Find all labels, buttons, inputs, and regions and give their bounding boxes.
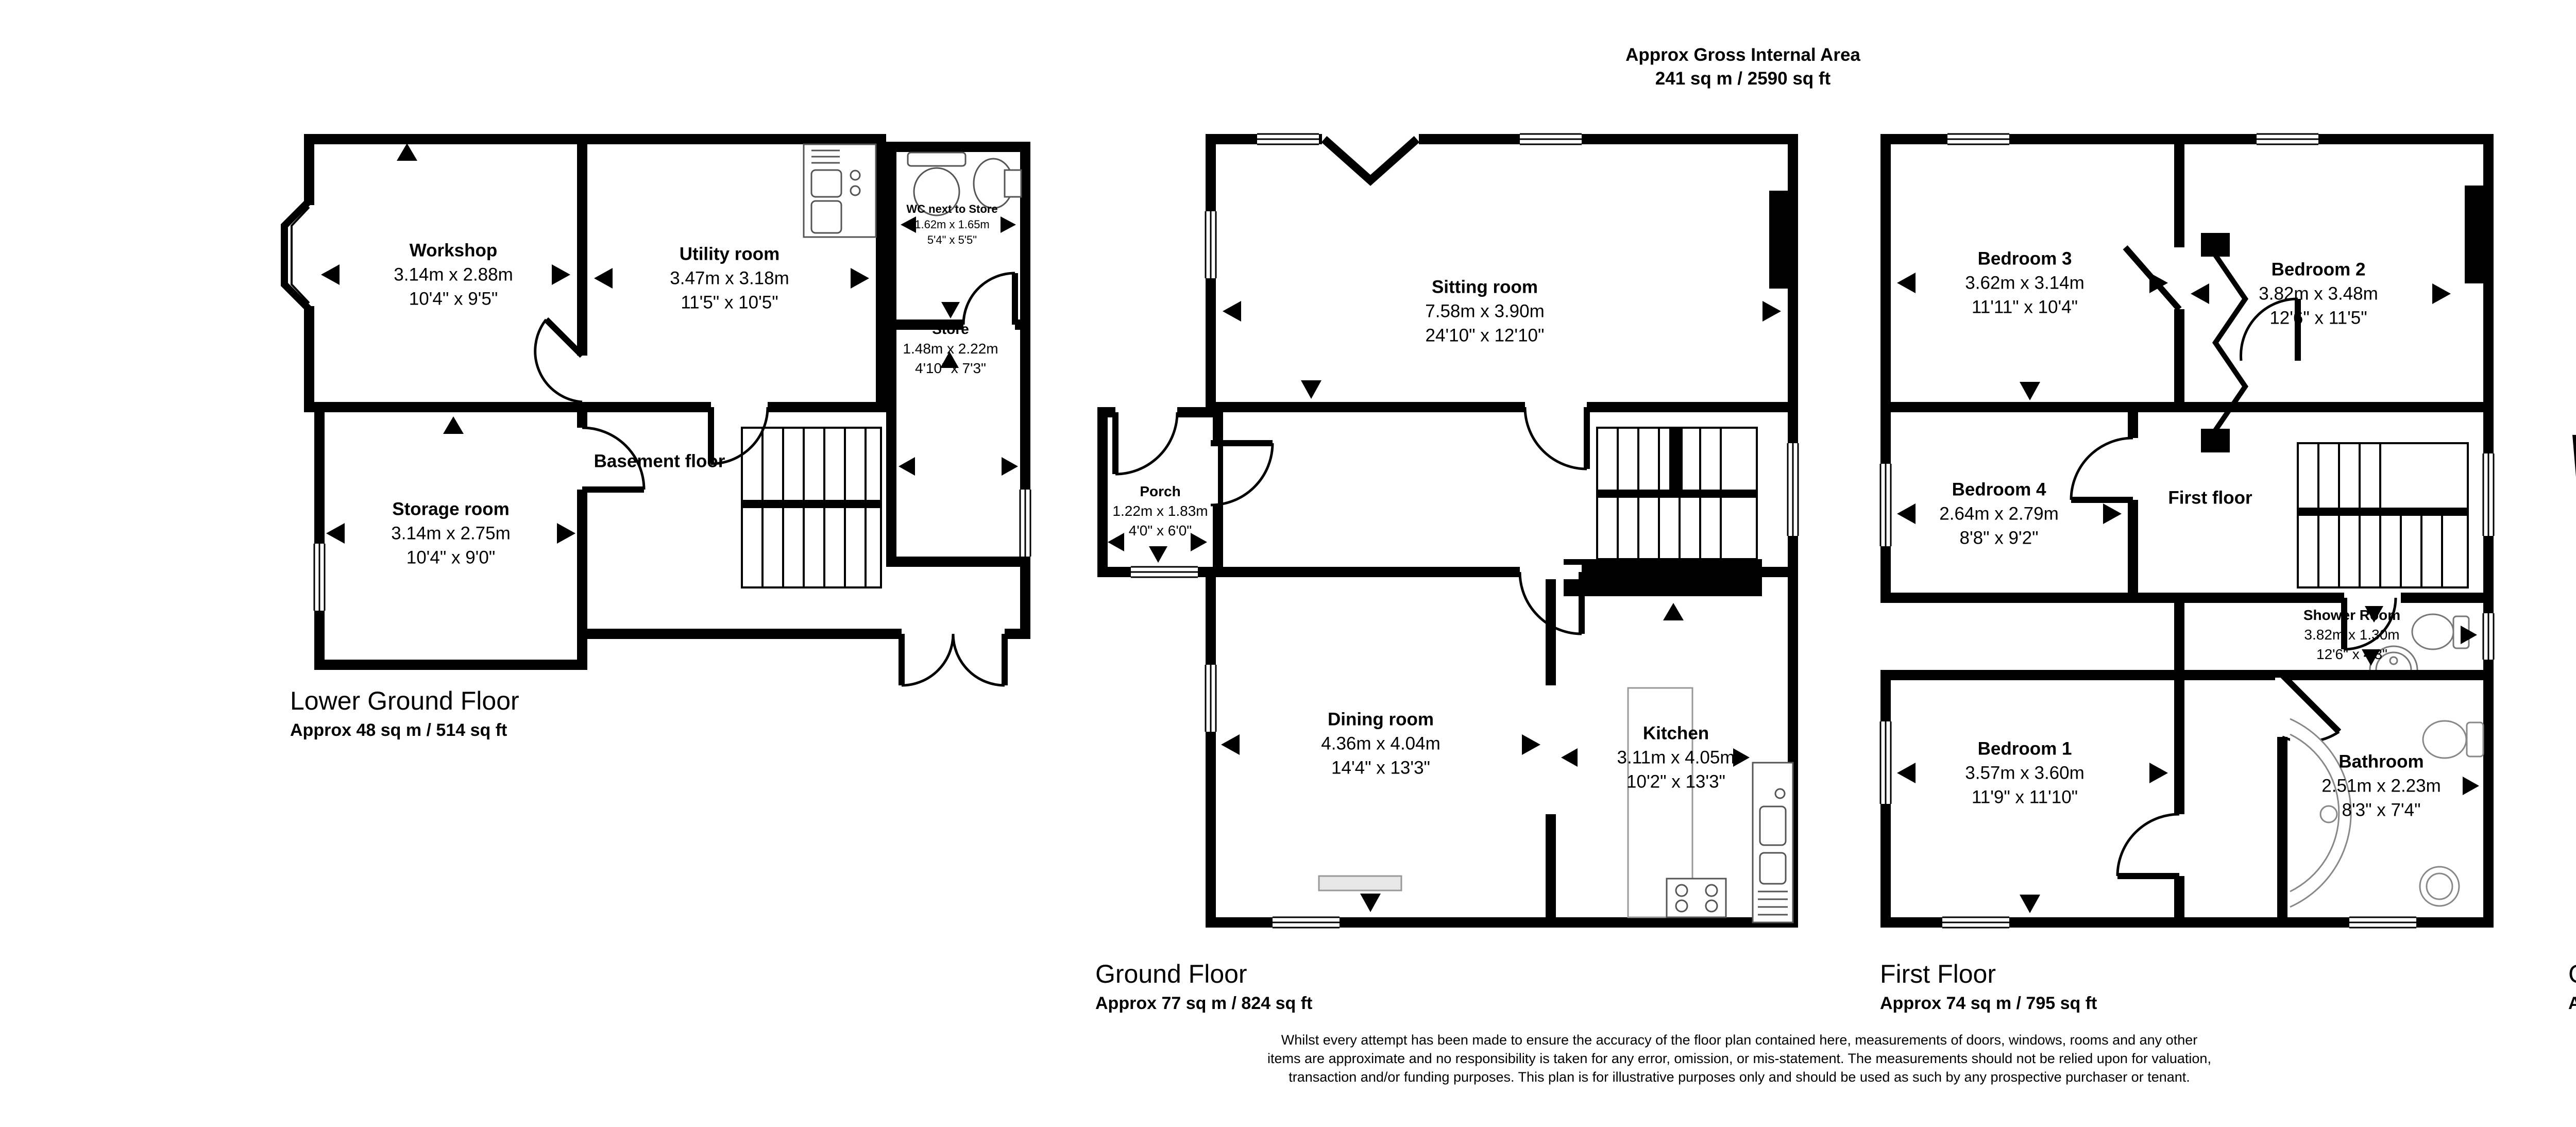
- room-label-sitting: Sitting room 7.58m x 3.90m 24'10" x 12'1…: [1425, 275, 1545, 348]
- room-label-kitchen: Kitchen 3.11m x 4.05m 10'2" x 13'3": [1617, 721, 1735, 794]
- bedroom2-chimney: [2465, 186, 2488, 283]
- room-sitting-walls: [1211, 139, 1793, 407]
- room-label-bedroom1: Bedroom 1 3.57m x 3.60m 11'9" x 11'10": [1965, 737, 2084, 810]
- utility-sink: [804, 144, 876, 237]
- gross-internal-area-header: Approx Gross Internal Area 241 sq m / 25…: [1625, 43, 1860, 91]
- room-label-bathroom: Bathroom 2.51m x 2.23m 8'3" x 7'4": [2321, 750, 2441, 822]
- storage-window: [312, 544, 327, 611]
- floor-title-ground: Ground Floor Approx 77 sq m / 824 sq ft: [1095, 960, 1312, 1014]
- room-label-store: Store 1.48m x 2.22m 4'10" x 7'3": [903, 319, 998, 378]
- header-area-value: 241 sq m / 2590 sq ft: [1625, 67, 1860, 91]
- header-title: Approx Gross Internal Area: [1625, 43, 1860, 67]
- room-label-bedroom4: Bedroom 4 2.64m x 2.79m 8'8" x 9'2": [1939, 478, 2059, 550]
- workshop-bay-window: [284, 201, 316, 309]
- kitchen-stove: [1667, 879, 1726, 917]
- room-label-utility: Utility room 3.47m x 3.18m 11'5" x 10'5": [670, 242, 789, 315]
- room-label-shower-room: Shower Room 3.82m x 1.30m 12'6" x 4'3": [2303, 605, 2400, 664]
- floor-title-lower-ground: Lower Ground Floor Approx 48 sq m / 514 …: [290, 686, 519, 741]
- room-label-bedroom2: Bedroom 2 3.82m x 3.48m 12'6" x 11'5": [2259, 258, 2378, 330]
- sitting-chimney: [1769, 191, 1793, 289]
- floorplan-drawing: N E S W: [0, 0, 2576, 1127]
- room-label-basement-floor: Basement floor: [594, 449, 725, 474]
- disclaimer-text: Whilst every attempt has been made to en…: [1266, 1031, 2212, 1086]
- room-label-workshop: Workshop 3.14m x 2.88m 10'4" x 9'5": [394, 239, 513, 311]
- store-window: [1018, 490, 1032, 557]
- room-label-bedroom3: Bedroom 3 3.62m x 3.14m 11'11" x 10'4": [1965, 247, 2084, 319]
- ff-inner-hall-walls: [2179, 675, 2282, 922]
- floorplan-page: N E S W Approx Gross Internal Area 241 s…: [0, 0, 2576, 1127]
- room-label-first-floor-landing: First floor: [2168, 486, 2252, 510]
- ff-stairs: [2298, 443, 2468, 587]
- room-label-porch: Porch 1.22m x 1.83m 4'0" x 6'0": [1112, 482, 1208, 541]
- room-label-storage: Storage room 3.14m x 2.75m 10'4" x 9'0": [391, 497, 511, 570]
- floor-title-garage: Garage Approx 42 sq m / 457 sq ft: [2568, 960, 2576, 1014]
- floor-title-first: First Floor Approx 74 sq m / 795 sq ft: [1880, 960, 2097, 1014]
- kitchen-opening: [1544, 685, 1558, 814]
- room-label-wc: WC next to Store 1.62m x 1.65m 5'4" x 5'…: [906, 201, 997, 248]
- basement-stairs: [742, 428, 881, 587]
- room-label-dining: Dining room 4.36m x 4.04m 14'4" x 13'3": [1321, 708, 1440, 780]
- dining-hearth: [1319, 876, 1401, 890]
- kitchen-sink-unit: [1753, 763, 1793, 922]
